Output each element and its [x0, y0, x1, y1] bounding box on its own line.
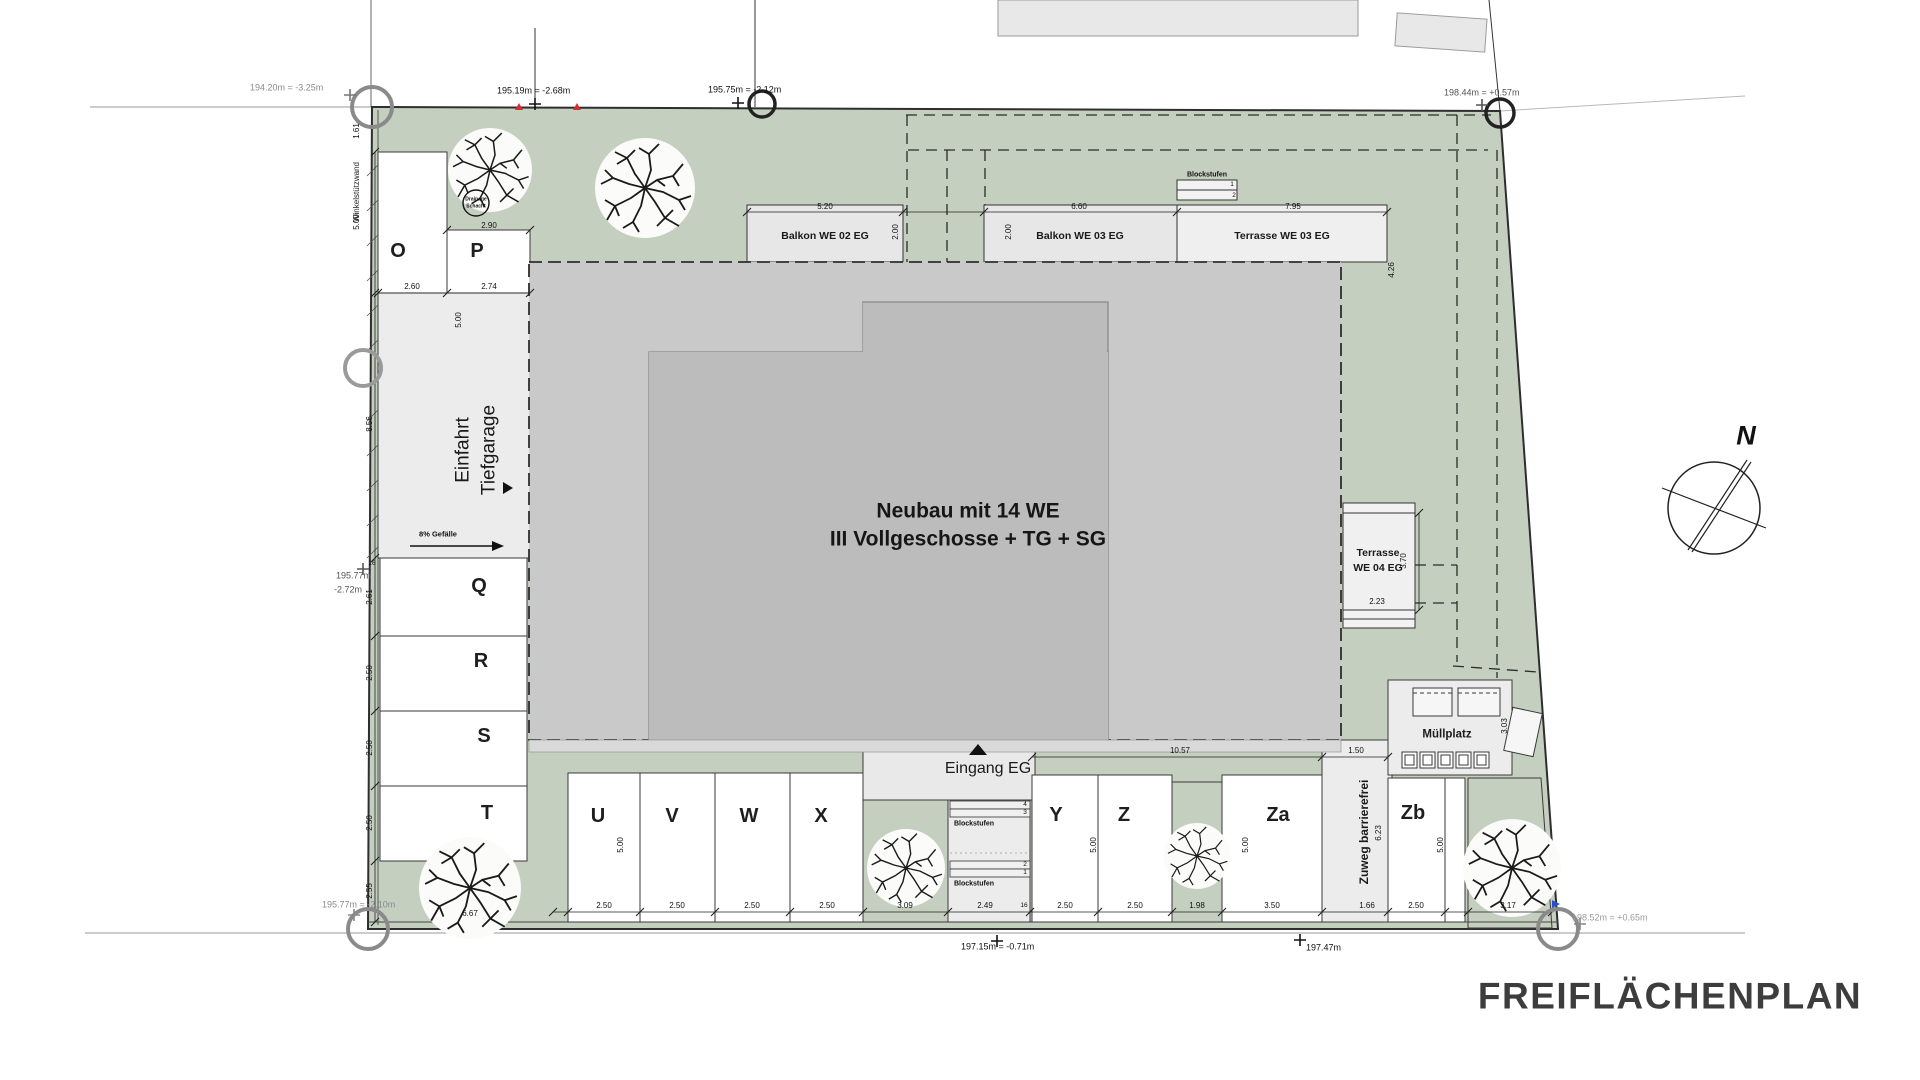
dim-t04-d: 3.70 [1400, 553, 1408, 569]
ramp-label-line2: Tiefgarage [480, 405, 499, 495]
parking-stall-S-box [380, 711, 527, 786]
waste-bins [1402, 752, 1489, 768]
accessible-path-label: Zuweg barrierefrei [1358, 780, 1370, 885]
dim-ramp: 8.56 [366, 416, 374, 432]
drainage-label-line1: Drainage [465, 198, 486, 203]
dim-gap: 1.98 [1189, 902, 1205, 910]
stall-edge-strip [1445, 778, 1465, 922]
parking-stall-Z-box [1098, 775, 1172, 922]
step-number: 1 [1230, 182, 1234, 189]
parking-stall-Zb-label: Zb [1401, 803, 1425, 823]
terrasse-we04-label-line1: Terrasse [1356, 548, 1399, 559]
step-number: 3 [1023, 810, 1027, 817]
dim-z: 2.50 [1127, 902, 1143, 910]
parking-stall-X-label: X [814, 806, 827, 826]
tree-icon [595, 138, 695, 238]
dim-w: 2.50 [744, 902, 760, 910]
parking-stall-Za-label: Za [1266, 805, 1289, 825]
building-label-line1: Neubau mit 14 WE [876, 501, 1059, 522]
parking-stall-R-label: R [474, 651, 488, 671]
dim-o-width: 2.60 [404, 283, 420, 291]
dim-tree-br: 3.17 [1500, 902, 1516, 910]
bin-shelter-2 [1458, 688, 1500, 716]
survey-point-br: 198.52m = +0.65m [1572, 914, 1648, 923]
dim-zuweg-b: 1.66 [1359, 902, 1375, 910]
red-marker-icon [573, 103, 581, 110]
step-number: 2 [1232, 193, 1236, 200]
parking-stall-Q-label: Q [471, 576, 487, 596]
dim-u: 2.50 [596, 902, 612, 910]
parking-stall-O-box [378, 152, 447, 293]
dim-p-top: 2.90 [481, 222, 497, 230]
terrasse-we03-label: Terrasse WE 03 EG [1234, 231, 1330, 242]
neighbour-buildings [998, 0, 1487, 52]
blocksteps-upper-label: Blockstufen [954, 821, 994, 828]
parking-stall-U-label: U [591, 806, 605, 826]
site-plan: FREIFLÄCHENPLAN N Neubau mit 14 WE III V… [0, 0, 1920, 1080]
step-number: 2 [1023, 862, 1027, 869]
dim-tree-bl: 6.67 [462, 910, 478, 918]
dim-y: 2.50 [1057, 902, 1073, 910]
tree-icon [867, 829, 945, 907]
muellplatz-label: Müllplatz [1422, 729, 1471, 741]
survey-point-left1: 195.77m [336, 572, 371, 581]
dim-row2: 10.57 [1170, 747, 1190, 755]
dim-muellplatz: 3.03 [1501, 718, 1509, 734]
dim-entrance: 2.49 [977, 902, 993, 910]
parking-stall-R-box [380, 636, 527, 711]
ramp-label-line1: Einfahrt [454, 417, 473, 482]
dim-16b: 16 [1020, 903, 1027, 910]
survey-point-bl: 195.77m = -2.10m [322, 901, 395, 910]
dim-t04-w: 2.23 [1369, 598, 1385, 606]
survey-point-tr: 198.44m = +0.57m [1444, 89, 1520, 98]
dim-tree-x: 3.09 [897, 902, 913, 910]
dim-zuweg-l: 6.23 [1375, 825, 1383, 841]
red-marker-icon [515, 103, 523, 110]
tree-icon [1164, 823, 1230, 889]
parking-stall-W-box [715, 773, 790, 922]
dim-16a: 16 [368, 561, 375, 568]
north-label: N [1736, 423, 1756, 450]
dim-v: 2.50 [669, 902, 685, 910]
blocksteps-lower-label: Blockstufen [954, 881, 994, 888]
survey-point-bottom1: 197.15m = -0.71m [961, 943, 1034, 952]
parking-stall-O-label: O [390, 241, 406, 261]
dim-t: 2.50 [366, 815, 374, 831]
parking-stall-W-label: W [740, 806, 759, 826]
tree-icon [419, 837, 521, 939]
dim-y-depth: 5.00 [1090, 837, 1098, 853]
bin-shelter-1 [1413, 688, 1452, 716]
building-walkway [529, 740, 1341, 752]
balkon-we02-label: Balkon WE 02 EG [781, 231, 869, 242]
parking-stall-S-label: S [477, 726, 490, 746]
survey-point-top1: 195.19m = -2.68m [497, 87, 570, 96]
parking-stall-Y-label: Y [1049, 805, 1062, 825]
dim-q: 2.61 [366, 589, 374, 605]
terrasse-we04-label-line2: WE 04 EG [1353, 563, 1403, 574]
north-arrow-icon [1662, 460, 1766, 554]
page-title: FREIFLÄCHENPLAN [1478, 978, 1862, 1015]
parking-stall-Z-label: Z [1118, 805, 1130, 825]
dim-zb: 2.50 [1408, 902, 1424, 910]
dim-s: 2.50 [366, 740, 374, 756]
drainage-label-line2: Schacht [466, 205, 485, 210]
survey-point-bottom2: 197.47m [1306, 944, 1341, 953]
dim-b03-d: 2.00 [1005, 224, 1013, 240]
step-number: 1 [1023, 870, 1027, 877]
dim-o-depth: 5.00 [353, 214, 361, 230]
dim-t2: 2.55 [366, 883, 374, 899]
tree-icon [448, 128, 532, 212]
dim-r: 2.50 [366, 665, 374, 681]
slope-label: 8% Gefälle [419, 530, 457, 538]
dim-za: 3.50 [1264, 902, 1280, 910]
blocksteps-top-label: Blockstufen [1187, 172, 1227, 179]
dim-b02-d: 2.00 [892, 224, 900, 240]
dim-b03-w: 6.60 [1071, 203, 1087, 211]
parking-stall-U-box [568, 773, 640, 922]
survey-point-top2: 195.75m = -2.12m [708, 86, 781, 95]
dim-t03-d: 4.26 [1388, 262, 1396, 278]
dim-row1-depth: 5.00 [617, 837, 625, 853]
dim-x: 2.50 [819, 902, 835, 910]
building-label-line2: III Vollgeschosse + TG + SG [830, 529, 1106, 550]
parking-stall-V-label: V [665, 806, 678, 826]
step-number: 4 [1023, 802, 1027, 809]
survey-point-tl: 194.20m = -3.25m [250, 84, 323, 93]
dim-t03-w: 7.95 [1285, 203, 1301, 211]
dim-za-depth: 5.00 [1242, 837, 1250, 853]
parking-stall-P-label: P [470, 241, 483, 261]
dim-strip: 1.61 [353, 123, 361, 139]
parking-stall-T-label: T [481, 803, 493, 823]
survey-point-left2: -2.72m [334, 586, 362, 595]
dim-p-depth: 5.00 [455, 312, 463, 328]
parking-stall-Q-box [380, 558, 527, 636]
dim-p-width: 2.74 [481, 283, 497, 291]
parking-stall-X-box [790, 773, 863, 922]
dim-b02-w: 5.20 [817, 203, 833, 211]
parking-stall-Za-box [1222, 775, 1322, 922]
parking-stall-V-box [640, 773, 715, 922]
entrance-label: Eingang EG [945, 761, 1031, 777]
dim-zuweg-w: 1.50 [1348, 747, 1364, 755]
dim-zb-depth: 5.00 [1437, 837, 1445, 853]
balkon-we03-label: Balkon WE 03 EG [1036, 231, 1124, 242]
